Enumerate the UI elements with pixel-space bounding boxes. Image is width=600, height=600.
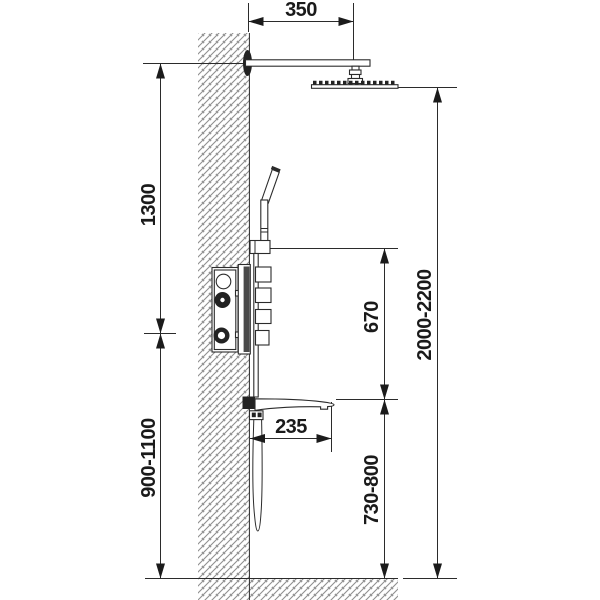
dim-label-head-height: 2000-2200 (414, 269, 436, 361)
hand-shower-handle (262, 170, 280, 204)
mixer-lever-1 (256, 267, 272, 282)
mixer-face-plate-band (244, 267, 250, 353)
floor-hatch (250, 579, 398, 600)
spout-wall-mount (243, 397, 256, 410)
mixer-lever-2 (256, 288, 272, 303)
head-plate (312, 85, 399, 89)
arm-bar (246, 60, 371, 66)
hand-shower-body (261, 200, 268, 242)
dim-label-mixer-height: 900-1100 (138, 418, 160, 498)
dim-label-arm-projection: 350 (285, 0, 317, 21)
rain-shower-head (312, 66, 399, 88)
dim-shower-arm-projection: 350 (249, 0, 354, 26)
dim-label-arm-to-mixer: 1300 (138, 183, 160, 226)
extension-lines (143, 3, 457, 452)
dim-mixer-height: 900-1100 (138, 334, 165, 579)
mixer-lever-4 (256, 331, 270, 346)
diagram-page: 350 1300 900-1100 670 730-80 (0, 0, 600, 600)
mixer-lever-3 (256, 310, 272, 324)
dim-arm-to-mixer: 1300 (138, 64, 165, 334)
dim-label-spout-projection: 235 (275, 416, 307, 438)
dim-label-holder-to-spout: 670 (361, 301, 383, 333)
dim-holder-to-spout: 670 (361, 249, 389, 400)
dim-head-height: 2000-2200 (414, 88, 442, 579)
diagram-canvas: 350 1300 900-1100 670 730-80 (0, 0, 600, 600)
hand-shower (261, 168, 280, 242)
mixer-knob-top (216, 274, 231, 289)
spout-body (255, 399, 334, 411)
dim-label-spout-height: 730-800 (361, 455, 383, 525)
floor (145, 579, 457, 600)
dim-spout-height: 730-800 (361, 400, 389, 579)
hand-shower-holder (250, 241, 270, 254)
